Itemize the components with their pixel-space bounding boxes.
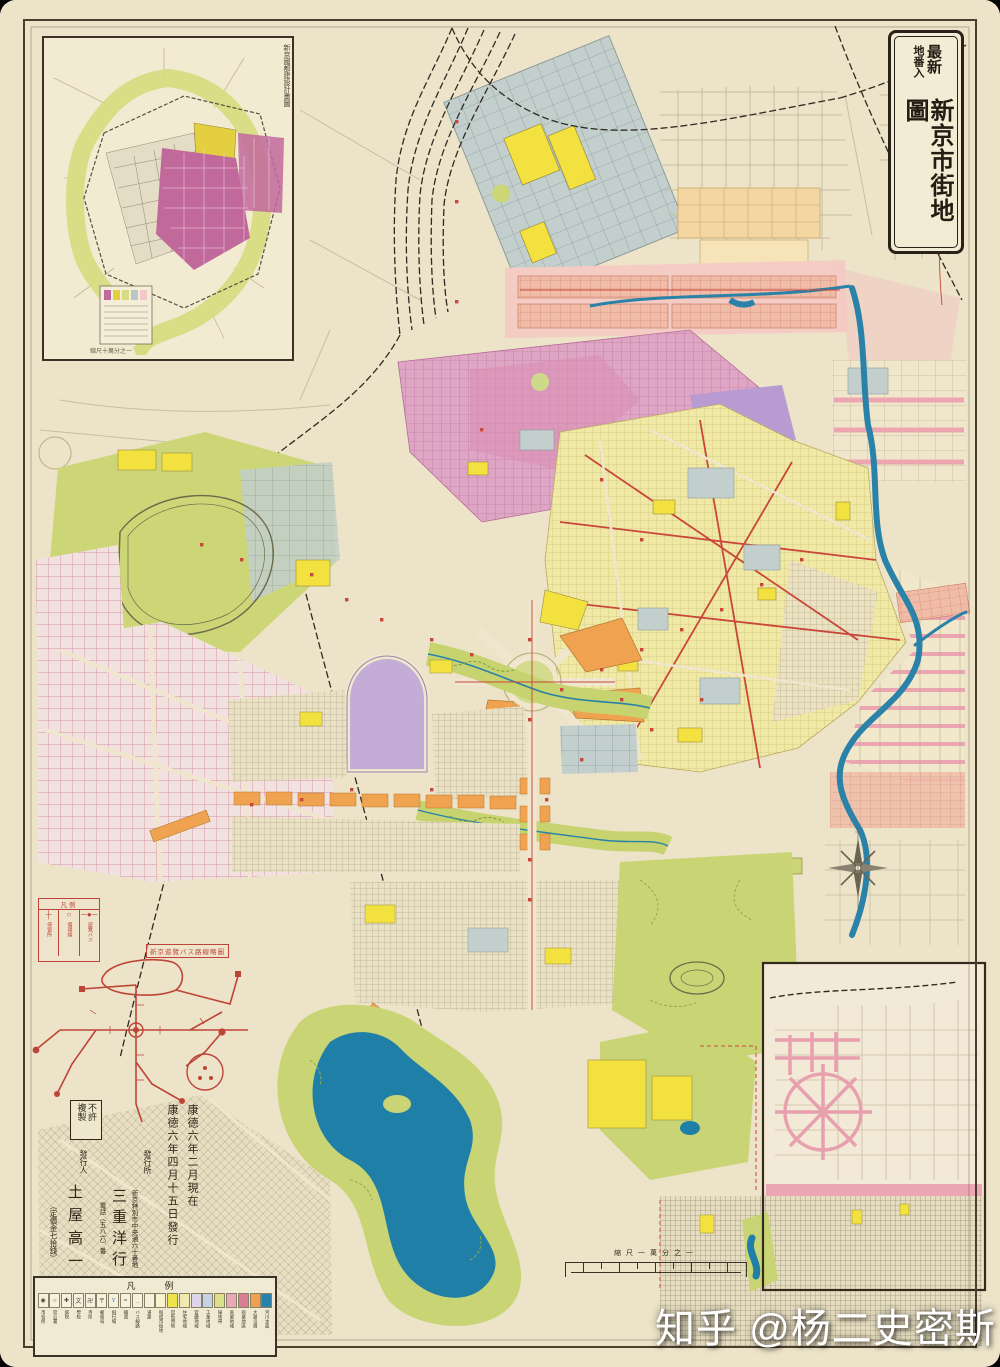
publisher-phone: 電話（五八六）番 (96, 1202, 106, 1254)
legend-items: ◉市役所 ○官公署 ✚病院 文學校 卍寺院 〒郵便局 Y飛行場 ┅鐵道 ﹍バス線… (35, 1292, 275, 1344)
legend-swatch: ◉ (38, 1293, 49, 1308)
legend-item: ◉市役所 (38, 1293, 48, 1344)
map-legend: 凡 例 ◉市役所 ○官公署 ✚病院 文學校 卍寺院 〒郵便局 Y飛行場 ┅鐵道 … (33, 1276, 277, 1357)
legend-swatch: ○ (49, 1293, 60, 1308)
publisher-address: 新京特別市中央通六十番地 (128, 1190, 138, 1268)
legend-swatch: ﹍ (132, 1293, 143, 1308)
bus-symbol: ─●─ (81, 910, 97, 922)
legend-swatch (179, 1293, 190, 1308)
legend-item: Y飛行場 (109, 1293, 119, 1344)
legend-item: ✚病院 (62, 1293, 72, 1344)
inset-mini-legend (100, 286, 152, 344)
bus-legend-item: ─●─ 遊覽バス (79, 910, 99, 956)
legend-swatch (167, 1293, 178, 1308)
legend-item: 住宅地域 (179, 1293, 189, 1344)
legend-item: 河川水面 (262, 1293, 272, 1344)
legend-swatch (261, 1293, 272, 1308)
pub-date-issued: 康德六年四月十五日發行 (164, 1104, 180, 1247)
map-title: 新京市街地圖 (901, 98, 951, 247)
legend-item: 道路 (144, 1293, 154, 1344)
legend-swatch (202, 1293, 213, 1308)
scale-bar: 縮尺一萬分之一 (565, 1248, 747, 1286)
publisher-label: 發行所 (142, 1150, 153, 1174)
scale-label: 縮尺一萬分之一 (565, 1248, 747, 1258)
title-prefix-bottom: 地番入 (912, 45, 923, 96)
palace-site (347, 656, 427, 772)
bus-legend-title: 凡例 (39, 899, 99, 910)
legend-item: 大路沿線 (250, 1293, 260, 1344)
screenshot-stage: 最新 地番入 新京市街地圖 新京國 (0, 0, 1000, 1367)
legend-item: ○官公署 (50, 1293, 60, 1344)
inset-footnote: 縮尺十萬分之一 (90, 346, 132, 355)
legend-swatch (214, 1293, 225, 1308)
legend-item: 商業地域 (227, 1293, 237, 1344)
legend-swatch: Y (108, 1293, 119, 1308)
map-sheet: 最新 地番入 新京市街地圖 新京國 (0, 0, 1000, 1367)
title-cartouche-inner: 最新 地番入 新京市街地圖 (894, 36, 958, 248)
bus-symbol: ┼ (46, 910, 52, 922)
legend-swatch: 〒 (96, 1293, 107, 1308)
legend-swatch (238, 1293, 249, 1308)
inset-plan-map: 新京國都建設計畫圖 縮尺十萬分之一 (42, 36, 294, 361)
legend-item: ﹍バス線路 (132, 1293, 142, 1344)
legend-swatch (250, 1293, 261, 1308)
legend-swatch: 文 (73, 1293, 84, 1308)
legend-swatch (191, 1293, 202, 1308)
inset-caption: 新京國都建設計畫圖 (283, 44, 290, 107)
legend-swatch (144, 1293, 155, 1308)
legend-item: 工業地域 (203, 1293, 213, 1344)
pub-date-current: 康德六年二月現在 (184, 1104, 200, 1208)
watermark: 知乎 @杨二史密斯 (655, 1296, 995, 1354)
legend-swatch: 卍 (85, 1293, 96, 1308)
title-cartouche: 最新 地番入 新京市街地圖 (888, 30, 964, 254)
no-copy-stamp: 不許 複製 (70, 1100, 102, 1140)
legend-item: 綠地帶 (215, 1293, 225, 1344)
legend-swatch: ✚ (61, 1293, 72, 1308)
bus-diagram-title: 新京遊覽バス路線略圖 (146, 944, 229, 958)
issuer-name: 土屋高一 (64, 1184, 85, 1276)
legend-item: 〒郵便局 (97, 1293, 107, 1344)
legend-item: 文學校 (73, 1293, 83, 1344)
bus-diagram-legend: 凡例 ─●─ 遊覽バス ○ 循環線 ┼ 停留所 (38, 898, 100, 962)
legend-swatch: ┅ (120, 1293, 131, 1308)
title-prefix-top: 最新 (925, 44, 940, 96)
legend-item: 卍寺院 (85, 1293, 95, 1344)
legend-item: 既成市街地 (156, 1293, 166, 1344)
legend-item: 官廳地域 (191, 1293, 201, 1344)
publisher-name: 三重洋行 (108, 1188, 129, 1272)
issuer-label: 發行人 (78, 1150, 89, 1174)
inset-plan-art (44, 38, 288, 355)
title-prefix: 最新 地番入 (912, 44, 940, 96)
legend-swatch (226, 1293, 237, 1308)
legend-item: 商業地區 (238, 1293, 248, 1344)
legend-item: ┅鐵道 (120, 1293, 130, 1344)
bus-legend-item: ○ 循環線 (58, 910, 78, 956)
bus-symbol: ○ (67, 910, 72, 922)
price-note: （定價金七拾錢） (48, 1202, 59, 1262)
legend-swatch (155, 1293, 166, 1308)
legend-title: 凡 例 (35, 1279, 275, 1292)
scale-ruler (565, 1262, 747, 1277)
bus-legend-item: ┼ 停留所 (39, 910, 58, 956)
legend-item: 官衙用地 (168, 1293, 178, 1344)
